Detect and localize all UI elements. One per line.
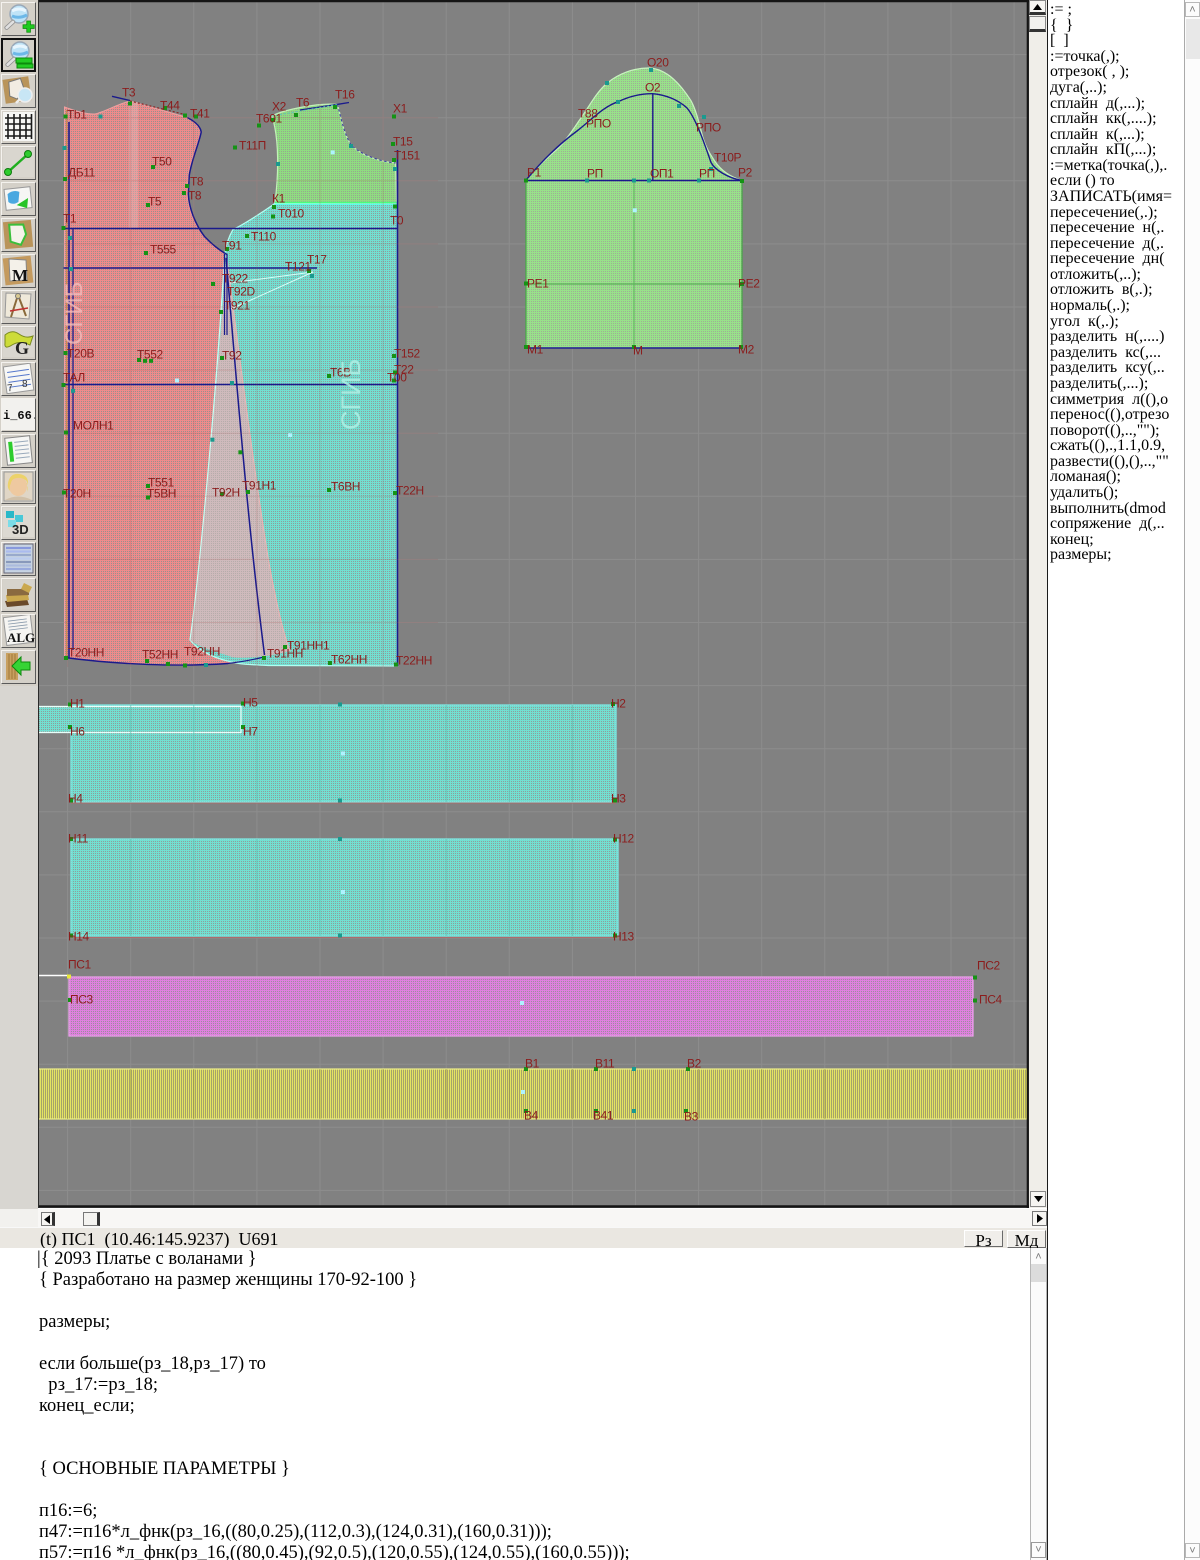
- svg-text:Т44: Т44: [160, 99, 180, 113]
- svg-text:Т1: Т1: [63, 212, 77, 226]
- svg-text:Т92D: Т92D: [227, 285, 255, 299]
- svg-text:РЕ2: РЕ2: [738, 277, 760, 291]
- svg-text:Т555: Т555: [150, 243, 176, 257]
- svg-text:СГИБ: СГИБ: [336, 359, 366, 430]
- svg-text:Н14: Н14: [68, 930, 90, 944]
- svg-text:МОЛН1: МОЛН1: [73, 419, 114, 433]
- svg-text:Т50: Т50: [152, 155, 172, 169]
- svg-text:Т20Н: Т20Н: [63, 487, 91, 501]
- svg-text:Т91: Т91: [222, 239, 242, 253]
- svg-text:РПО: РПО: [586, 117, 611, 131]
- svg-text:Тb1: Тb1: [67, 108, 87, 122]
- svg-text:M: M: [12, 266, 28, 285]
- svg-text:РП: РП: [699, 167, 715, 181]
- svg-text:Т110: Т110: [251, 230, 277, 244]
- svg-text:М2: М2: [738, 343, 755, 357]
- svg-text:8: 8: [22, 379, 28, 390]
- svg-text:Т0: Т0: [390, 214, 404, 228]
- svg-text:В2: В2: [687, 1057, 702, 1071]
- svg-text:М1: М1: [527, 343, 544, 357]
- svg-text:Т22НН: Т22НН: [396, 654, 432, 668]
- svg-text:ПС2: ПС2: [977, 959, 1000, 973]
- svg-text:Р2: Р2: [738, 166, 753, 180]
- svg-text:ПС4: ПС4: [979, 993, 1002, 1007]
- svg-text:Т151: Т151: [394, 149, 420, 163]
- svg-text:Т16: Т16: [335, 88, 355, 102]
- svg-text:Т5ВН: Т5ВН: [147, 487, 176, 501]
- svg-text:Н3: Н3: [611, 792, 626, 806]
- svg-text:Т6: Т6: [296, 96, 310, 110]
- svg-text:О2: О2: [645, 81, 661, 95]
- svg-text:Н11: Н11: [68, 832, 89, 846]
- svg-text:Х1: Х1: [393, 102, 408, 116]
- svg-text:В4: В4: [524, 1109, 539, 1123]
- svg-text:Т00: Т00: [387, 371, 407, 385]
- svg-text:Т91Н1: Т91Н1: [242, 479, 277, 493]
- svg-text:Т152: Т152: [394, 347, 420, 361]
- svg-text:Т6ВН: Т6ВН: [331, 480, 360, 494]
- svg-text:ОП1: ОП1: [650, 167, 674, 181]
- svg-text:М: М: [633, 344, 643, 358]
- svg-text:К1: К1: [272, 192, 286, 206]
- svg-text:В1: В1: [525, 1057, 540, 1071]
- svg-text:Т91НН1: Т91НН1: [287, 639, 330, 653]
- svg-text:Н7: Н7: [243, 725, 258, 739]
- svg-text:Р1: Р1: [527, 166, 542, 180]
- svg-text:Т22Н: Т22Н: [396, 484, 424, 498]
- svg-text:Т8: Т8: [188, 189, 202, 203]
- svg-text:В3: В3: [684, 1110, 699, 1124]
- svg-text:ALG: ALG: [7, 630, 35, 645]
- svg-text:Т11П: Т11П: [239, 139, 266, 153]
- svg-text:РЕ1: РЕ1: [527, 277, 549, 291]
- svg-text:Н12: Н12: [613, 832, 635, 846]
- svg-text:Т20НН: Т20НН: [68, 646, 104, 660]
- svg-text:G: G: [15, 338, 29, 358]
- svg-text:Н1: Н1: [70, 697, 85, 711]
- svg-text:Т3: Т3: [122, 86, 136, 100]
- svg-text:В41: В41: [593, 1109, 614, 1123]
- svg-text:Т921: Т921: [224, 299, 250, 313]
- svg-text:СГИБ: СГИБ: [61, 282, 88, 345]
- svg-text:В11: В11: [595, 1057, 615, 1071]
- svg-text:Т62НН: Т62НН: [331, 653, 367, 667]
- svg-text:Т552: Т552: [137, 348, 163, 362]
- svg-text:i_66.: i_66.: [3, 409, 35, 423]
- svg-text:Т15: Т15: [393, 135, 413, 149]
- svg-text:РПО: РПО: [696, 121, 721, 135]
- svg-text:РП: РП: [587, 167, 603, 181]
- svg-text:Н5: Н5: [243, 696, 258, 710]
- svg-text:Т5: Т5: [148, 195, 162, 209]
- svg-text:ТАЛ: ТАЛ: [63, 371, 85, 385]
- svg-text:ДБ11: ДБ11: [68, 166, 96, 180]
- svg-text:Т121: Т121: [285, 260, 311, 274]
- svg-text:Т8: Т8: [190, 175, 204, 189]
- svg-text:Т601: Т601: [256, 112, 282, 126]
- svg-text:Т20В: Т20В: [67, 347, 94, 361]
- svg-text:О20: О20: [647, 56, 669, 70]
- svg-text:Н2: Н2: [611, 697, 626, 711]
- svg-text:Т92: Т92: [222, 349, 242, 363]
- svg-text:Т92Н: Т92Н: [212, 486, 240, 500]
- svg-text:Н13: Н13: [613, 930, 635, 944]
- svg-text:Т10Р: Т10Р: [714, 151, 741, 165]
- svg-text:Т92НН: Т92НН: [184, 645, 220, 659]
- svg-text:Т52НН: Т52НН: [142, 648, 178, 662]
- svg-text:3D: 3D: [12, 522, 29, 537]
- svg-text:Т010: Т010: [278, 207, 304, 221]
- svg-text:ПС1: ПС1: [68, 958, 91, 972]
- svg-text:Т41: Т41: [190, 107, 210, 121]
- svg-text:Н6: Н6: [70, 725, 85, 739]
- svg-text:ПС3: ПС3: [70, 993, 93, 1007]
- svg-text:Т922: Т922: [222, 272, 248, 286]
- svg-text:Н4: Н4: [68, 792, 83, 806]
